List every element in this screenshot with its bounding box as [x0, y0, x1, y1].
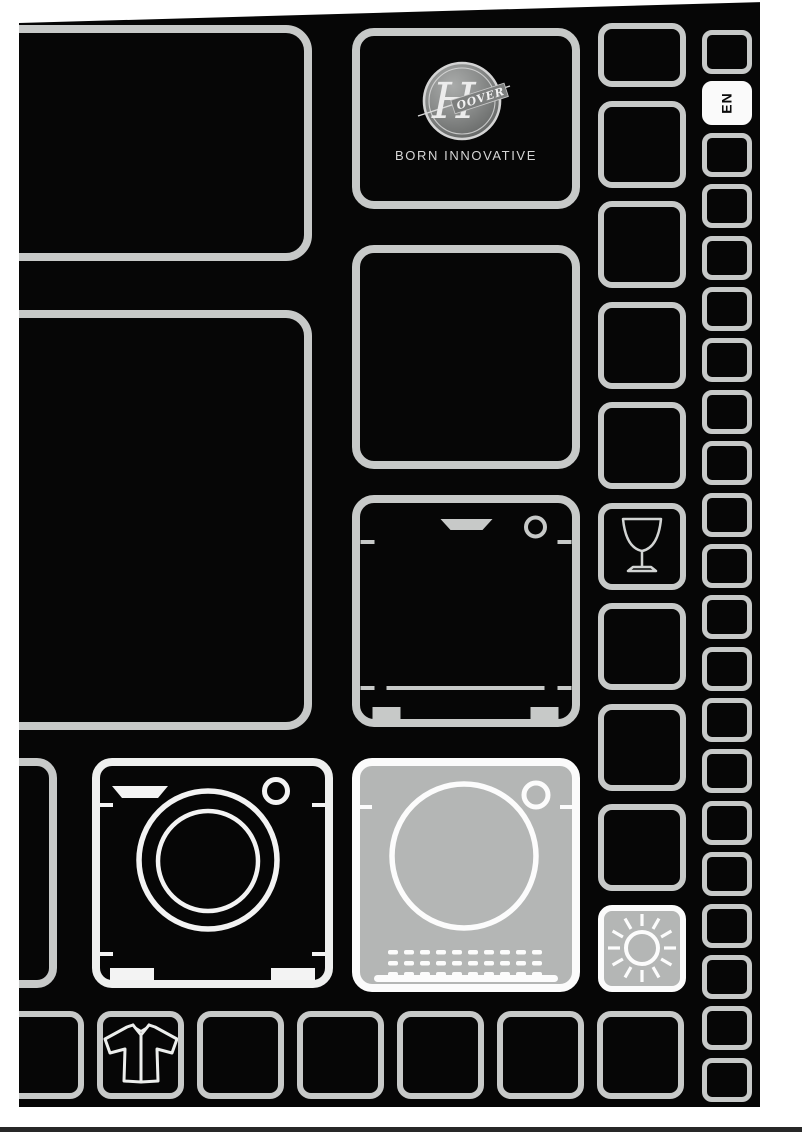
grid-tile — [702, 595, 752, 639]
grid-tile — [702, 647, 752, 691]
dishwasher-icon — [360, 503, 572, 719]
grid-tile — [598, 101, 686, 188]
language-badge: EN — [702, 81, 752, 125]
grid-tile-large — [0, 310, 312, 730]
manual-cover-page: H OOVER BORN INNOVATIVE — [0, 0, 802, 1136]
right-scan-margin — [760, 0, 802, 1136]
sun-icon — [604, 911, 680, 986]
right-inner-column — [598, 23, 686, 992]
grid-tile — [397, 1011, 484, 1099]
grid-tile — [702, 698, 752, 742]
washing-machine-icon — [100, 766, 325, 980]
grid-tile — [197, 1011, 284, 1099]
sun-rays — [608, 914, 676, 982]
dishwasher-tile — [352, 495, 580, 727]
grid-tile — [702, 184, 752, 228]
grid-tile — [702, 287, 752, 331]
grid-tile — [702, 1058, 752, 1102]
tumble-dryer-tile — [352, 758, 580, 992]
grid-tile — [597, 1011, 684, 1099]
hoover-logo: H OOVER — [360, 36, 572, 201]
grid-tile — [598, 804, 686, 891]
wine-glass-icon — [604, 509, 680, 584]
left-scan-margin — [0, 0, 19, 1136]
grid-tile — [598, 23, 686, 87]
right-outer-column: EN — [702, 30, 752, 1102]
grid-tile — [598, 402, 686, 489]
grid-tile — [702, 236, 752, 280]
bottom-rule — [0, 1127, 802, 1132]
dryer-vent-dashes — [388, 950, 542, 977]
language-code: EN — [719, 93, 735, 114]
brand-tagline: BORN INNOVATIVE — [360, 148, 572, 163]
grid-tile — [702, 493, 752, 537]
grid-tile — [598, 201, 686, 288]
grid-tile — [702, 749, 752, 793]
shirt-icon — [103, 1017, 178, 1093]
shirt-tile — [97, 1011, 184, 1099]
grid-tile — [702, 133, 752, 177]
tumble-dryer-icon — [360, 766, 572, 984]
grid-tile — [702, 801, 752, 845]
washing-machine-tile — [92, 758, 333, 988]
grid-tile — [702, 852, 752, 896]
grid-tile — [598, 704, 686, 791]
grid-tile — [598, 302, 686, 389]
brand-tile: H OOVER BORN INNOVATIVE — [352, 28, 580, 209]
grid-tile — [702, 338, 752, 382]
grid-tile — [702, 904, 752, 948]
bottom-row — [0, 1011, 684, 1099]
grid-tile — [702, 30, 752, 74]
grid-tile-large — [0, 25, 312, 261]
grid-tile — [702, 544, 752, 588]
grid-tile — [598, 603, 686, 690]
grid-tile — [702, 441, 752, 485]
wine-glass-tile — [598, 503, 686, 590]
grid-tile-large — [352, 245, 580, 469]
grid-tile — [497, 1011, 584, 1099]
sun-tile — [598, 905, 686, 992]
grid-tile — [702, 390, 752, 434]
grid-tile — [702, 1006, 752, 1050]
grid-tile — [702, 955, 752, 999]
grid-tile — [297, 1011, 384, 1099]
